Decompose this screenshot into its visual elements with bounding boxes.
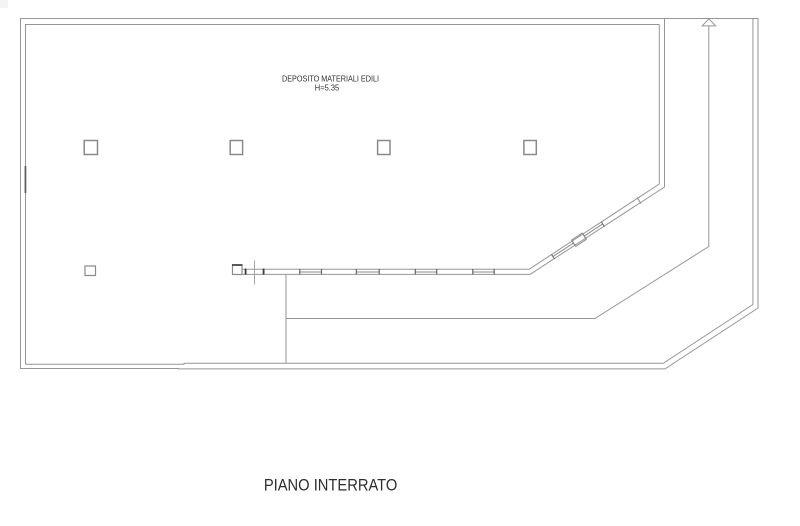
svg-text:DEPOSITO MATERIALI EDILI: DEPOSITO MATERIALI EDILI (282, 75, 379, 84)
svg-text:PIANO INTERRATO: PIANO INTERRATO (264, 476, 398, 495)
svg-text:H=5.35: H=5.35 (315, 84, 340, 93)
